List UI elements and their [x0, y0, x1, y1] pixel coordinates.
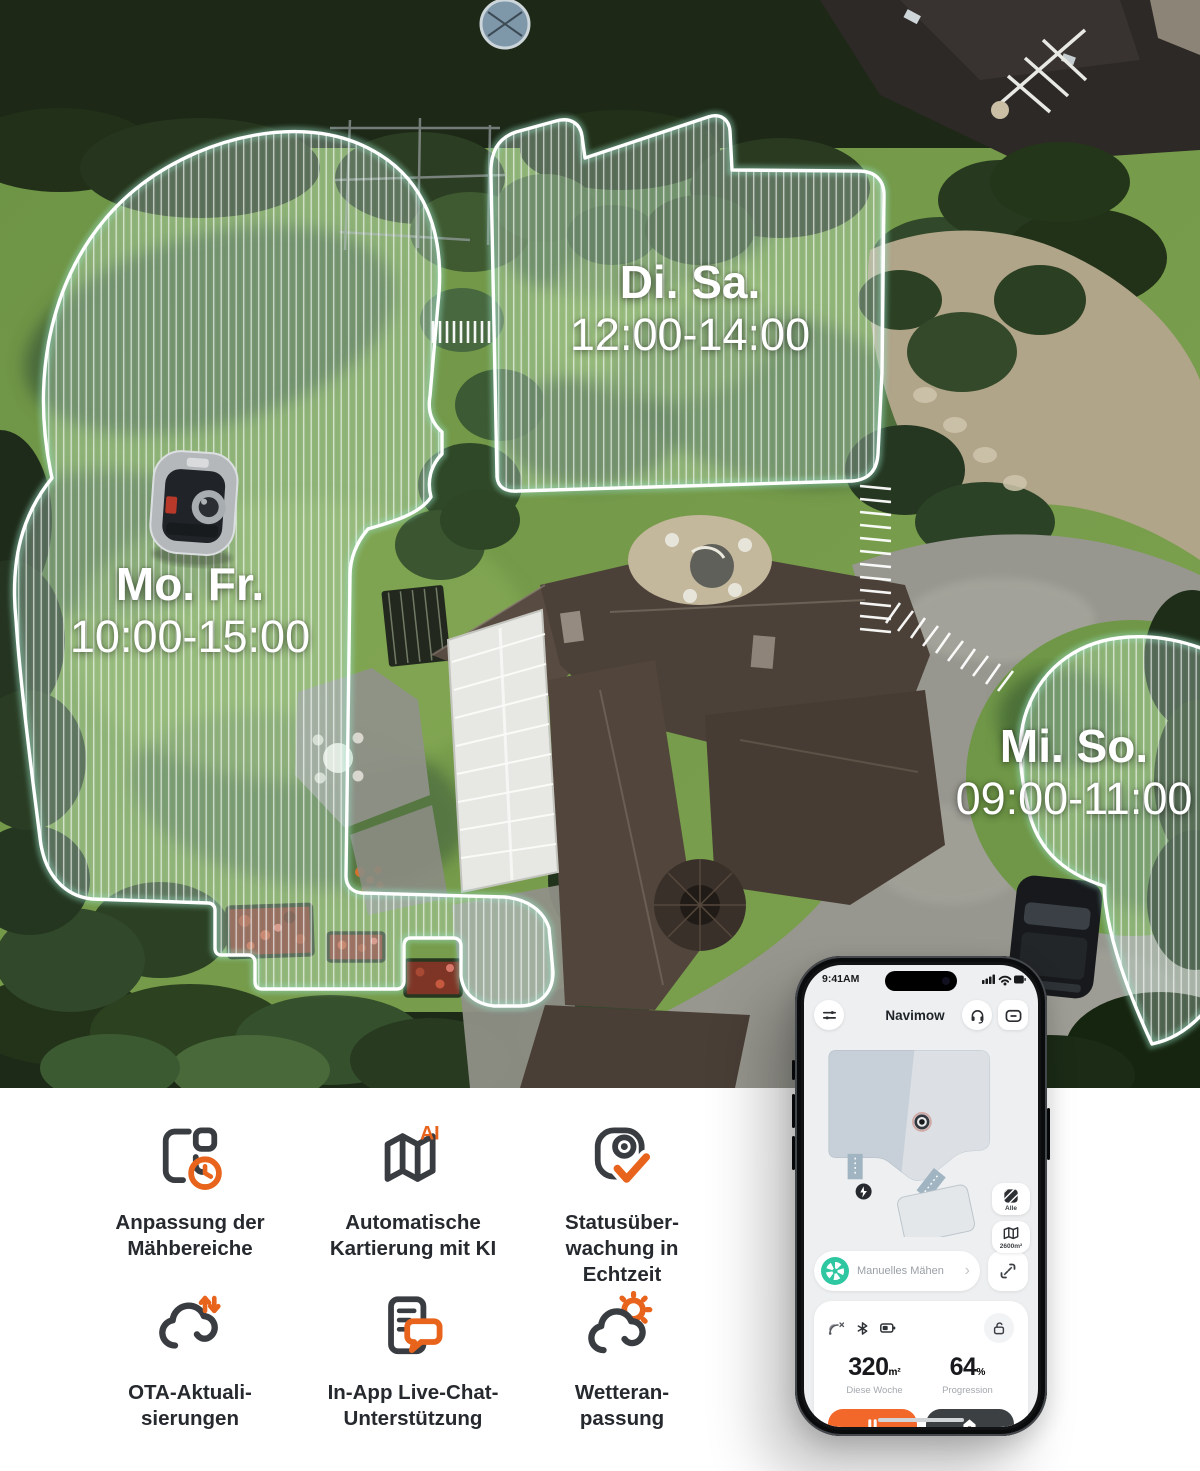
progress-value: 64: [950, 1353, 977, 1381]
map-area-button[interactable]: 2600m²: [992, 1221, 1030, 1253]
zone-time: 09:00-11:00: [928, 775, 1200, 823]
volume-up-button: [792, 1094, 795, 1128]
map-icon: [1003, 1226, 1019, 1242]
feature-mow-zones: Anpassung der Mähbereiche: [80, 1118, 300, 1262]
progress-label: Progression: [921, 1385, 1014, 1396]
power-button: [1047, 1108, 1050, 1160]
home-indicator[interactable]: [878, 1418, 964, 1422]
zone-day: Mi. So.: [928, 722, 1200, 771]
chimney: [560, 611, 584, 643]
unlock-icon: [991, 1320, 1007, 1336]
device-button[interactable]: [998, 1000, 1028, 1030]
zone-label-di-sa: Di. Sa. 12:00-14:00: [520, 258, 860, 358]
week-value: 320: [848, 1353, 888, 1381]
trampoline: [481, 0, 529, 48]
feature-live-chat: In-App Live-Chat- Unterstützung: [300, 1288, 526, 1432]
map-ai-icon: AI: [300, 1118, 526, 1196]
hatched-square-icon: [1003, 1188, 1019, 1204]
robot-status-card: 320m² Diese Woche 64% Progression: [814, 1301, 1028, 1427]
feature-status-monitoring: Statusüber- wachung in Echtzeit: [528, 1118, 716, 1288]
svg-text:AI: AI: [420, 1123, 440, 1145]
battery-icon: [880, 1321, 896, 1335]
map-expand-button[interactable]: [988, 1251, 1028, 1291]
app-screen: 9:41AM: [804, 965, 1038, 1427]
map-all-label: Alle: [1005, 1205, 1017, 1212]
mode-row[interactable]: Manuelles Mähen ›: [814, 1251, 980, 1291]
zone-day: Di. Sa.: [520, 258, 860, 307]
headset-support-button[interactable]: [962, 1000, 992, 1030]
patio-table: [628, 515, 772, 605]
map-area-label: 2600m²: [1000, 1243, 1022, 1250]
feature-label: In-App Live-Chat- Unterstützung: [300, 1380, 526, 1432]
stat-week: 320m² Diese Woche: [828, 1353, 921, 1396]
lawn-map[interactable]: Alle 2600m²: [810, 1035, 1032, 1237]
pause-icon: [866, 1418, 879, 1427]
feature-label: Anpassung der Mähbereiche: [80, 1210, 300, 1262]
feature-label: Wetteran- passung: [528, 1380, 716, 1432]
week-unit: m²: [888, 1367, 900, 1378]
zone-time: 12:00-14:00: [520, 311, 860, 359]
signal-off-icon: [828, 1321, 845, 1336]
mute-switch: [792, 1060, 795, 1080]
stat-progress: 64% Progression: [921, 1353, 1014, 1396]
feature-auto-mapping: AI Automatische Kartierung mit KI: [300, 1118, 526, 1262]
chevron-right-icon: ›: [965, 1263, 970, 1279]
app-header: Navimow: [804, 993, 1038, 1033]
volume-down-button: [792, 1136, 795, 1170]
feature-ota-updates: OTA-Aktuali- sierungen: [80, 1288, 300, 1432]
front-camera: [942, 977, 950, 985]
home-icon: [962, 1418, 977, 1428]
zone-label-mi-so: Mi. So. 09:00-11:00: [928, 722, 1200, 822]
cloud-ota-icon: [80, 1288, 300, 1366]
lock-button[interactable]: [984, 1313, 1014, 1343]
map-charging-station: [856, 1184, 872, 1200]
status-monitor-check-icon: [528, 1118, 716, 1196]
mode-pinwheel-icon: [821, 1257, 849, 1285]
map-robot-position: [913, 1113, 931, 1131]
dynamic-island: [885, 971, 957, 991]
aerial-scene: [0, 0, 1200, 1088]
mow-zones-clock-icon: [80, 1118, 300, 1196]
map-zone-small: [896, 1184, 976, 1237]
zone-day: Mo. Fr.: [20, 560, 360, 609]
feature-label: OTA-Aktuali- sierungen: [80, 1380, 300, 1432]
zone-time: 10:00-15:00: [20, 613, 360, 661]
menu-button[interactable]: [814, 1000, 844, 1030]
conservatory: [448, 610, 558, 892]
status-icons: [982, 973, 1026, 986]
status-bar: 9:41AM: [804, 965, 1038, 993]
feature-label: Automatische Kartierung mit KI: [300, 1210, 526, 1262]
feature-label: Statusüber- wachung in Echtzeit: [528, 1210, 716, 1288]
expand-icon: [999, 1262, 1017, 1280]
mode-label: Manuelles Mähen: [857, 1265, 965, 1277]
progress-unit: %: [976, 1367, 985, 1378]
week-label: Diese Woche: [828, 1385, 921, 1396]
aerial-lawn-photo: [0, 0, 1200, 1088]
app-title: Navimow: [844, 1008, 962, 1023]
bluetooth-icon: [856, 1321, 869, 1336]
phone-mockup: 9:41AM: [795, 956, 1047, 1436]
weather-cloud-sun-icon: [528, 1288, 716, 1366]
navimow-marketing-page: Mo. Fr. 10:00-15:00 Di. Sa. 12:00-14:00 …: [0, 0, 1200, 1471]
zone-label-mo-fr: Mo. Fr. 10:00-15:00: [20, 560, 360, 660]
status-time: 9:41AM: [822, 973, 859, 985]
feature-weather: Wetteran- passung: [528, 1288, 716, 1432]
map-all-zones-button[interactable]: Alle: [992, 1183, 1030, 1215]
chat-support-icon: [300, 1288, 526, 1366]
chimney: [751, 635, 776, 669]
